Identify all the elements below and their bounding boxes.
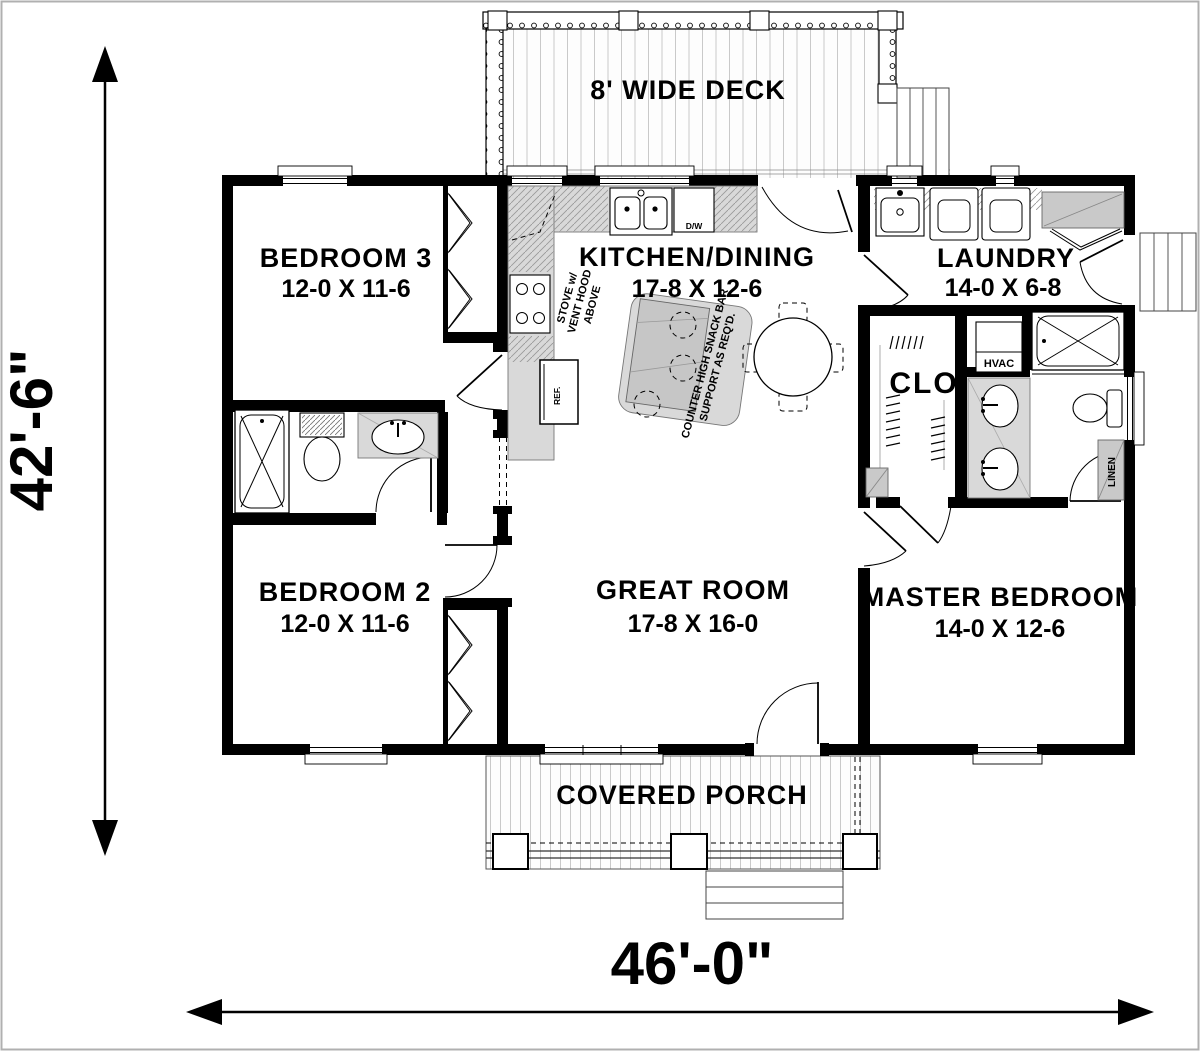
laundry-exterior-stairs xyxy=(1140,233,1196,311)
hall-bath-toilet xyxy=(300,413,344,481)
porch-column xyxy=(843,834,877,869)
porch-column xyxy=(671,834,707,869)
refrigerator-label: REF. xyxy=(552,387,562,405)
great-room-name: GREAT ROOM xyxy=(596,575,790,605)
laundry-sink xyxy=(876,188,924,236)
dishwasher: D/W xyxy=(674,188,714,232)
porch-column xyxy=(493,834,528,869)
deck-label: 8' WIDE DECK xyxy=(590,75,785,105)
refrigerator: REF. xyxy=(540,360,578,424)
hvac-closet: HVAC xyxy=(976,322,1022,372)
linen-closet: LINEN xyxy=(1098,440,1124,500)
closet-shelf-box xyxy=(866,468,888,497)
hvac-label: HVAC xyxy=(984,358,1014,370)
master-bedroom-name: MASTER BEDROOM xyxy=(862,582,1139,612)
deck-post xyxy=(488,11,507,30)
deck-post xyxy=(619,11,638,30)
laundry-counter xyxy=(1042,192,1124,228)
kitchen-sink xyxy=(610,188,672,235)
bedroom3-size: 12-0 X 11-6 xyxy=(281,275,410,303)
laundry-name: LAUNDRY xyxy=(937,243,1075,273)
hall-bath-tub xyxy=(235,410,289,513)
deck-post xyxy=(878,84,897,103)
laundry-size: 14-0 X 6-8 xyxy=(945,274,1062,302)
deck-railing-left xyxy=(486,28,503,178)
master-bedroom-size: 14-0 X 12-6 xyxy=(935,615,1066,643)
deck-stairs xyxy=(897,88,949,178)
kitchen-size: 17-8 X 12-6 xyxy=(632,275,763,303)
porch-steps xyxy=(706,871,843,919)
left-dimension-text: 42'-6" xyxy=(0,349,65,512)
floor-plan-drawing: 8' WIDE DECK COVERED PORCH xyxy=(0,0,1200,1051)
kitchen-name: KITCHEN/DINING xyxy=(579,242,815,272)
great-room-size: 17-8 X 16-0 xyxy=(628,610,759,638)
linen-label: LINEN xyxy=(1107,457,1118,487)
stove xyxy=(510,275,550,333)
deck-post xyxy=(878,11,897,30)
bedroom2-name: BEDROOM 2 xyxy=(259,577,432,607)
hall-bath-vanity xyxy=(358,413,438,458)
porch-label: COVERED PORCH xyxy=(556,780,808,810)
bottom-dimension-text: 46'-0" xyxy=(611,930,774,997)
master-vanity xyxy=(968,378,1030,498)
dishwasher-label: D/W xyxy=(686,221,704,231)
deck-post xyxy=(750,11,769,30)
bedroom2-size: 12-0 X 11-6 xyxy=(280,610,409,638)
bedroom3-name: BEDROOM 3 xyxy=(260,243,433,273)
master-tub xyxy=(1032,312,1124,374)
deck-railing-top xyxy=(483,12,903,29)
closet-label: CLO xyxy=(889,367,958,400)
deck-railing-right xyxy=(879,28,896,88)
great-room-window xyxy=(540,745,663,764)
floor-plan-page: 8' WIDE DECK COVERED PORCH xyxy=(0,0,1200,1051)
